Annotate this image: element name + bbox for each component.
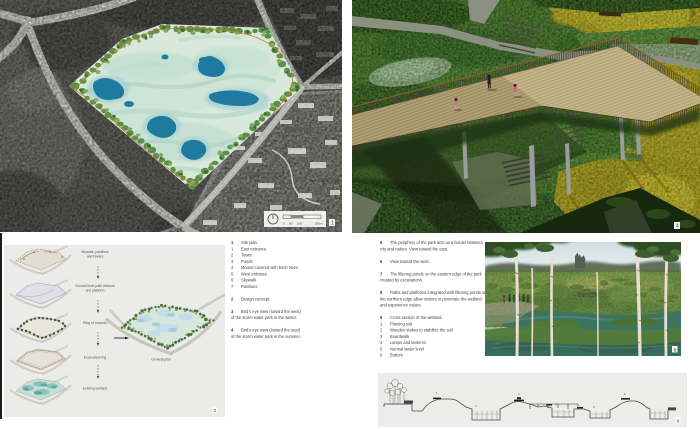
svg-text:8: 8	[674, 347, 677, 352]
svg-text:1: 1	[331, 221, 334, 227]
svg-text:200m: 200m	[315, 222, 323, 226]
svg-text:Existing wetland: Existing wetland	[83, 387, 108, 391]
svg-text:4: 4	[676, 224, 679, 230]
svg-text:Excavated ring: Excavated ring	[84, 356, 107, 360]
svg-text:and towers: and towers	[87, 255, 104, 259]
svg-text:Ring of mounds: Ring of mounds	[83, 321, 107, 325]
svg-text:General plan: General plan	[151, 358, 171, 362]
svg-text:and platform: and platform	[86, 289, 105, 293]
svg-text:Ground level path network: Ground level path network	[75, 284, 115, 288]
svg-text:100: 100	[297, 222, 302, 226]
svg-text:2: 2	[214, 408, 217, 413]
svg-text:50: 50	[289, 222, 293, 226]
svg-text:Skywalk, pavilions: Skywalk, pavilions	[81, 250, 109, 254]
svg-text:6: 6	[677, 418, 680, 423]
